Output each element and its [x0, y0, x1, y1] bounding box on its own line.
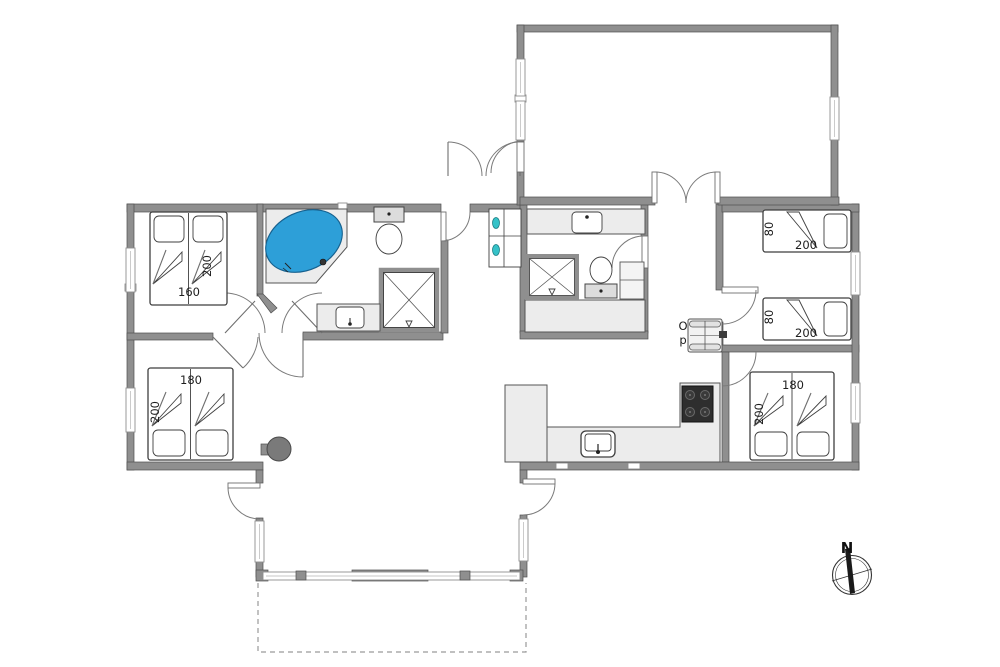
bed-length-label: 200: [200, 255, 214, 277]
cooktop: [682, 386, 713, 422]
loft-stairs: O p: [678, 319, 727, 352]
bed-width-label: 180: [782, 378, 804, 392]
window: [556, 463, 568, 469]
window: [255, 521, 264, 562]
pillow: [824, 214, 847, 248]
door-bedroom-nw: [225, 293, 265, 333]
stairs-wall-anchor: [719, 331, 727, 338]
door-bedroom-sw: [213, 337, 258, 368]
shower: [381, 270, 437, 330]
floor-plan-canvas: O p 160: [0, 0, 1000, 667]
door-bigroom-west: [491, 141, 524, 173]
window: [516, 101, 525, 140]
wood-stove: [261, 437, 291, 461]
bed-length-label: 200: [148, 401, 162, 423]
window: [126, 248, 135, 292]
terrace-outline: [258, 583, 526, 652]
door-bathroom1: [282, 293, 322, 333]
door-porch-left: [448, 142, 482, 176]
corner-bathtub: [255, 198, 352, 284]
window: [628, 463, 640, 469]
window: [851, 383, 860, 423]
bathroom2: [525, 209, 645, 332]
washer-dryer-cabinet: [489, 209, 521, 267]
window: [516, 59, 525, 96]
stairs-up-label: p: [679, 333, 686, 347]
pillow: [153, 430, 185, 456]
bed-length-label: 200: [795, 238, 817, 252]
walls: [125, 25, 859, 581]
bed-length-label: 200: [752, 403, 766, 425]
bed-width-label: 180: [180, 373, 202, 387]
door-entry-hall: [441, 212, 470, 241]
window: [851, 252, 860, 295]
door-bedroom-east: [722, 287, 758, 324]
compass: N: [832, 539, 872, 595]
door-terrace-east: [523, 479, 555, 515]
dryer-door-icon: [493, 245, 500, 256]
window: [126, 388, 135, 432]
washer-door-icon: [493, 218, 500, 229]
cabinet: [620, 262, 644, 299]
counter-top: [527, 209, 645, 234]
bed-nw: 160 200: [150, 212, 227, 305]
pillow: [196, 430, 228, 456]
pillow: [797, 432, 829, 456]
double-door-bigroom: [652, 172, 720, 203]
bed-width-label: 160: [178, 285, 200, 299]
windows: [126, 59, 860, 580]
kitchen: [505, 383, 720, 462]
bed-east-1: 80 200: [762, 210, 851, 252]
counter-bottom: [525, 300, 645, 332]
bed-width-label: 80: [762, 222, 776, 237]
bed-se: 180 200: [750, 372, 834, 460]
door-terrace-west: [228, 483, 260, 519]
stairs-up-label: O: [678, 319, 687, 333]
window: [830, 97, 839, 140]
compass-north-label: N: [841, 539, 854, 557]
bed-east-2: 80 200: [762, 298, 851, 340]
pillow: [154, 216, 184, 242]
pillow: [824, 302, 847, 336]
pillow: [755, 432, 787, 456]
kitchen-tall-cabinet: [505, 385, 547, 462]
bathroom1: [255, 198, 437, 331]
shower: [527, 256, 577, 298]
kitchen-sink: [581, 431, 615, 457]
pillow: [193, 216, 223, 242]
bed-sw: 180 200: [148, 368, 233, 460]
window: [519, 519, 528, 561]
door-hall-living: [259, 333, 303, 377]
window-band: [263, 571, 520, 580]
bed-length-label: 200: [795, 326, 817, 340]
washbasin: [317, 304, 380, 331]
bed-width-label: 80: [762, 310, 776, 325]
floor-plan: O p 160: [0, 0, 1000, 667]
toilet: [374, 207, 404, 254]
